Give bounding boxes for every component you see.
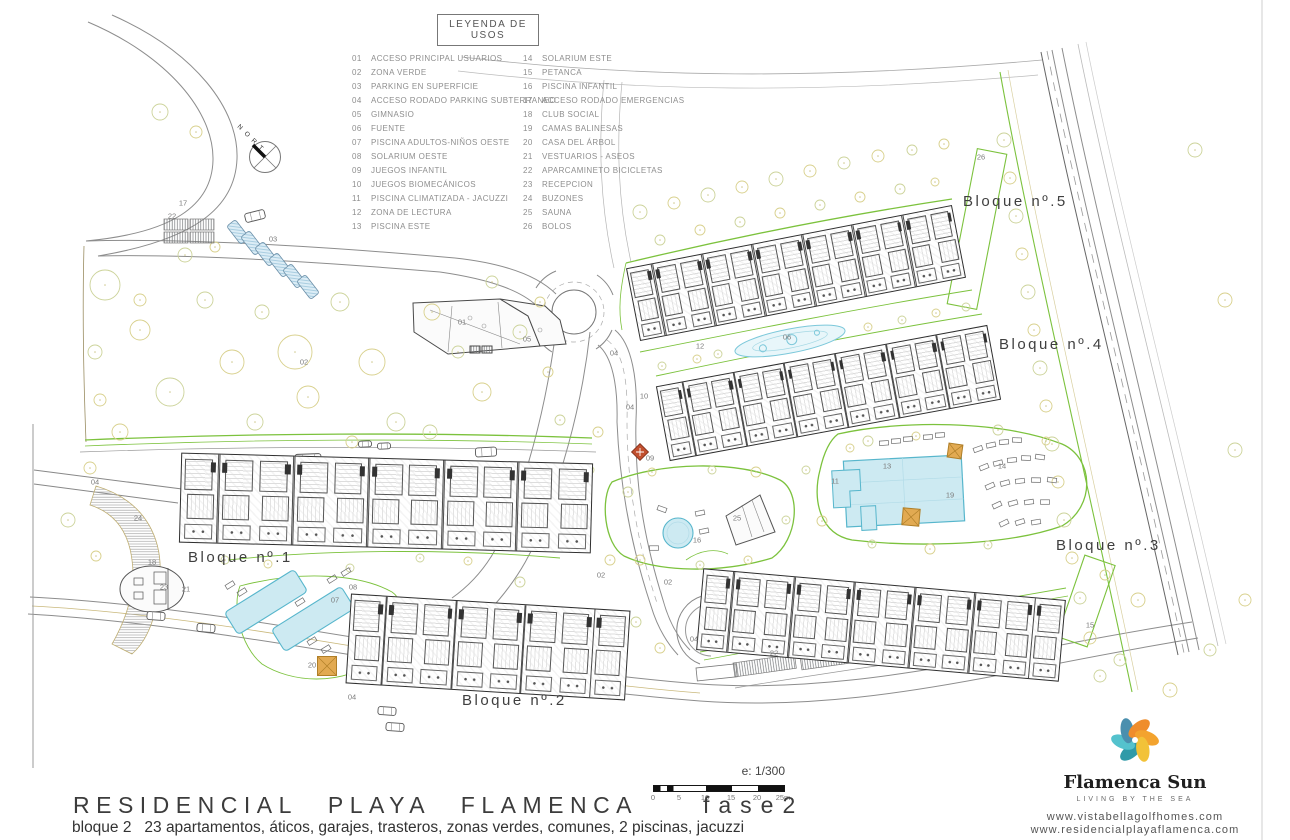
terrace [975, 384, 996, 400]
terrace [881, 649, 905, 665]
terrace [798, 417, 819, 433]
project-subtitle: bloque 2 23 apartamentos, áticos, garaje… [72, 819, 744, 837]
terrace [867, 277, 888, 293]
area-marker-12: 12 [696, 342, 704, 351]
terrace [696, 436, 717, 452]
site-plan-sheet: NORT LEYENDA DE USOS 01ACCESO PRINCIPAL … [0, 0, 1290, 840]
legend-item-number: 09 [352, 164, 371, 178]
legend-item: 24BUZONES [523, 192, 684, 206]
legend-item-label: ZONA DE LECTURA [371, 208, 452, 217]
legend-item: 22APARCAMINETO BICICLETAS [523, 164, 684, 178]
stair-core [517, 613, 522, 624]
terrace [767, 296, 788, 312]
apartment-unit [180, 454, 220, 543]
stair-core [897, 223, 902, 232]
stair-core [697, 261, 702, 270]
stair-core [830, 361, 835, 370]
terrace [408, 530, 437, 546]
scale-tick: 0 [651, 793, 655, 802]
stair-core [706, 260, 711, 269]
legend-item-label: ACCESO PRINCIPAL USUARIOS [371, 54, 502, 63]
legend-item-number: 22 [523, 164, 542, 178]
stair-core [378, 604, 383, 615]
area-marker-09: 09 [646, 454, 654, 463]
legend-item-number: 07 [352, 136, 371, 150]
legend-item: 25SAUNA [523, 206, 684, 220]
area-marker-23: 23 [160, 583, 168, 592]
terrace [483, 532, 512, 548]
scale-tick: 5 [677, 793, 681, 802]
terrace [490, 673, 517, 690]
legend-item-number: 13 [352, 220, 371, 234]
terrace [350, 665, 377, 682]
terrace [420, 669, 447, 686]
stair-core [521, 470, 526, 481]
stair-core [847, 232, 852, 241]
stair-core [931, 342, 936, 351]
terrace [456, 671, 483, 688]
legend-item-number: 24 [523, 192, 542, 206]
legend-item-number: 01 [352, 52, 371, 66]
stair-core [917, 595, 922, 605]
area-marker-04: 04 [348, 693, 356, 702]
legend-item-label: FUENTE [371, 124, 405, 133]
apartment-unit [404, 460, 444, 549]
legend-item-label: BOLOS [542, 222, 572, 231]
area-marker-26: 26 [977, 153, 985, 162]
stair-core [447, 608, 452, 619]
legend-item-number: 14 [523, 52, 542, 66]
stair-core [528, 613, 533, 624]
terrace [594, 680, 621, 697]
stair-core [788, 369, 793, 378]
legend-item-number: 10 [352, 178, 371, 192]
terrace [791, 292, 812, 308]
stair-core [977, 601, 982, 611]
stair-core [1027, 605, 1032, 615]
apartment-unit [479, 461, 519, 550]
legend-item-label: ZONA VERDE [371, 68, 427, 77]
stair-core [297, 465, 302, 476]
terrace [1032, 662, 1056, 678]
legend-item-number: 04 [352, 94, 371, 108]
area-marker-03: 03 [269, 235, 277, 244]
stair-core [360, 466, 365, 477]
apartment-unit [521, 605, 561, 695]
legend-item: 21VESTUARIOS - ASEOS [523, 150, 684, 164]
terrace [852, 646, 876, 662]
terrace [817, 287, 838, 303]
area-marker-11: 11 [831, 477, 839, 486]
sun-pinwheel-icon [1107, 710, 1163, 770]
legend-item: 18CLUB SOCIAL [523, 108, 684, 122]
legend-item-label: CAMAS BALINESAS [542, 124, 623, 133]
stair-core [1036, 606, 1041, 616]
legend-item-number: 18 [523, 108, 542, 122]
legend-item-number: 26 [523, 220, 542, 234]
stair-core [677, 389, 682, 398]
terrace [732, 636, 756, 652]
legend-item-label: PISCINA ADULTOS-NIÑOS OESTE [371, 138, 510, 147]
area-marker-04: 04 [610, 349, 618, 358]
stair-core [940, 341, 945, 350]
stair-core [856, 590, 861, 600]
terrace [942, 654, 966, 670]
apartment-unit [255, 456, 295, 545]
legend-item-label: BUZONES [542, 194, 583, 203]
legend-item: 16PISCINA INFANTIL [523, 80, 684, 94]
legend-item-label: SAUNA [542, 208, 572, 217]
apartment-unit [217, 455, 257, 544]
terrace [259, 526, 288, 542]
terrace [792, 641, 816, 657]
apartment-unit [553, 463, 592, 552]
building-block-3 [696, 568, 1066, 681]
apartment-unit [486, 603, 526, 693]
legend-item-label: APARCAMINETO BICICLETAS [542, 166, 663, 175]
building-block-2 [346, 594, 631, 701]
stair-core [889, 350, 894, 359]
area-marker-13: 13 [883, 462, 891, 471]
project-title: RESIDENCIAL PLAYA FLAMENCA [73, 792, 638, 819]
legend-item-label: CASA DEL ÁRBOL [542, 138, 616, 147]
stair-core [797, 242, 802, 251]
legend-item-number: 02 [352, 66, 371, 80]
legend-item-label: VESTUARIOS - ASEOS [542, 152, 635, 161]
area-marker-14: 14 [998, 462, 1006, 471]
legend-item-label: RECEPCION [542, 180, 593, 189]
stair-core [223, 463, 228, 474]
legend-item-label: PARKING EN SUPERFICIE [371, 82, 478, 91]
terrace [667, 316, 688, 332]
stair-core [906, 221, 911, 230]
terrace [821, 644, 845, 660]
phase-label: fase2 [703, 792, 804, 819]
stair-core [880, 352, 885, 361]
stair-core [856, 231, 861, 240]
terrace [900, 398, 921, 414]
stair-core [726, 579, 731, 589]
legend-item-label: JUEGOS BIOMECÁNICOS [371, 180, 476, 189]
block-label-5: Bloque nº.5 [963, 193, 1068, 210]
area-marker-02: 02 [597, 571, 605, 580]
legend-item: 20CASA DEL ÁRBOL [523, 136, 684, 150]
apartment-unit [347, 595, 387, 685]
apartment-unit [441, 460, 481, 549]
stair-core [806, 240, 811, 249]
terrace [446, 531, 475, 547]
legend-item: 14SOLARIUM ESTE [523, 52, 684, 66]
apartment-unit [451, 601, 491, 691]
terrace [772, 422, 793, 438]
legend-item-number: 25 [523, 206, 542, 220]
stair-core [747, 252, 752, 261]
stair-core [459, 609, 464, 620]
apartment-unit [367, 459, 407, 548]
terrace [701, 633, 725, 649]
legend-item-number: 23 [523, 178, 542, 192]
area-marker-07: 07 [331, 596, 339, 605]
stair-core [796, 585, 801, 595]
company-logo: Flamenca Sun LIVING BY THE SEA www.vista… [1030, 710, 1240, 836]
apartment-unit [416, 599, 456, 689]
apartment-unit [329, 458, 369, 547]
area-marker-04: 04 [690, 635, 698, 644]
area-marker-22: 22 [770, 649, 778, 658]
legend-title-box: LEYENDA DE USOS [437, 14, 539, 46]
terrace [913, 652, 937, 668]
terrace [386, 667, 413, 684]
terrace [1002, 659, 1026, 675]
legend-item-label: ACCESO RODADO EMERGENCIAS [542, 96, 684, 105]
area-marker-25: 25 [733, 514, 741, 523]
terrace [691, 311, 712, 327]
legend-item-number: 21 [523, 150, 542, 164]
stair-core [786, 584, 791, 594]
stair-core [447, 468, 452, 479]
area-marker-05: 05 [523, 335, 531, 344]
area-marker-16: 16 [693, 536, 701, 545]
block-label-4: Bloque nº.4 [999, 336, 1104, 353]
stair-core [947, 213, 952, 222]
scale-bar-graphic [653, 785, 785, 792]
stair-core [779, 371, 784, 380]
terrace [891, 272, 912, 288]
stair-core [597, 618, 602, 629]
stair-core [435, 468, 440, 479]
area-marker-20: 20 [308, 661, 316, 670]
terrace [184, 524, 213, 540]
terrace [557, 534, 586, 550]
area-marker-01: 01 [458, 318, 466, 327]
apartment-unit [555, 607, 595, 697]
terrace [873, 403, 894, 419]
legend-item: 19CAMAS BALINESAS [523, 122, 684, 136]
area-marker-22: 22 [168, 212, 176, 221]
legend-item: 15PETANCA [523, 66, 684, 80]
legend-item-label: PISCINA INFANTIL [542, 82, 617, 91]
stair-core [737, 378, 742, 387]
legend-item-label: JUEGOS INFANTIL [371, 166, 447, 175]
stair-core [210, 462, 215, 473]
terrace [747, 427, 768, 443]
legend-item-label: PISCINA ESTE [371, 222, 430, 231]
legend-item-number: 03 [352, 80, 371, 94]
terrace [222, 525, 251, 541]
terrace [924, 394, 945, 410]
legend-item-number: 20 [523, 136, 542, 150]
apartment-unit [590, 609, 629, 699]
terrace [917, 267, 938, 283]
legend-item-label: SOLARIUM OESTE [371, 152, 448, 161]
area-marker-04: 04 [626, 403, 634, 412]
terrace [741, 302, 762, 318]
website-link-1: www.vistabellagolfhomes.com [1030, 811, 1240, 823]
stair-core [586, 617, 591, 628]
area-marker-15: 15 [1086, 621, 1094, 630]
apartment-unit [292, 457, 332, 546]
apartment-unit [381, 597, 421, 687]
terrace [670, 441, 691, 457]
legend-item-label: CLUB SOCIAL [542, 110, 599, 119]
stair-core [509, 470, 514, 481]
terrace [641, 321, 662, 337]
stair-core [686, 388, 691, 397]
legend-item-number: 05 [352, 108, 371, 122]
terrace [717, 306, 738, 322]
terrace [950, 389, 971, 405]
terrace [721, 431, 742, 447]
terrace [822, 413, 843, 429]
legend-item-label: PISCINA CLIMATIZADA - JACUZZI [371, 194, 508, 203]
stair-core [372, 467, 377, 478]
stair-core [728, 380, 733, 389]
legend-title: LEYENDA DE USOS [449, 19, 527, 41]
terrace [973, 657, 997, 673]
block-label-1: Bloque nº.1 [188, 549, 293, 566]
stair-core [846, 589, 851, 599]
stair-core [647, 271, 652, 280]
website-link-2: www.residencialplayaflamenca.com [1030, 824, 1240, 836]
stair-core [967, 600, 972, 610]
block-label-2: Bloque nº.2 [462, 692, 567, 709]
legend-item: 17ACCESO RODADO EMERGENCIAS [523, 94, 684, 108]
area-marker-19: 19 [946, 491, 954, 500]
area-marker-18: 18 [148, 558, 156, 567]
legend-item: 26BOLOS [523, 220, 684, 234]
terrace [525, 676, 552, 693]
stair-core [736, 579, 741, 589]
area-marker-06: 06 [783, 333, 791, 342]
stair-core [838, 360, 843, 369]
legend-item-number: 17 [523, 94, 542, 108]
legend-item-label: PETANCA [542, 68, 582, 77]
area-marker-02: 02 [300, 358, 308, 367]
logo-tagline: LIVING BY THE SEA [1030, 796, 1240, 803]
legend-item-number: 11 [352, 192, 371, 206]
area-marker-04: 04 [91, 478, 99, 487]
legend-item-number: 08 [352, 150, 371, 164]
terrace [297, 527, 326, 543]
terrace [333, 528, 362, 544]
legend-item-number: 15 [523, 66, 542, 80]
stair-core [756, 250, 761, 259]
scale-label: e: 1/300 [742, 764, 785, 778]
legend-item-label: GIMNASIO [371, 110, 414, 119]
building-block-4 [655, 325, 1000, 461]
block-label-3: Bloque nº.3 [1056, 537, 1161, 554]
apartment-unit [516, 462, 556, 551]
terrace [841, 282, 862, 298]
building-block-1 [179, 453, 593, 554]
terrace [849, 408, 870, 424]
stair-core [584, 472, 589, 483]
legend-item-number: 12 [352, 206, 371, 220]
area-marker-08: 08 [349, 583, 357, 592]
legend-item-label: SOLARIUM ESTE [542, 54, 612, 63]
area-marker-24: 24 [134, 514, 142, 523]
legend-item-number: 19 [523, 122, 542, 136]
apartment-unit [1029, 598, 1065, 680]
stair-core [389, 605, 394, 616]
terrace [941, 263, 962, 279]
area-marker-02: 02 [664, 578, 672, 587]
terrace [521, 533, 550, 549]
stair-core [656, 269, 661, 278]
area-marker-21: 21 [182, 585, 190, 594]
logo-name: Flamenca Sun [1030, 772, 1240, 793]
stair-core [907, 594, 912, 604]
legend-item: 23RECEPCION [523, 178, 684, 192]
stair-core [285, 464, 290, 475]
area-marker-17: 17 [179, 199, 187, 208]
stair-core [982, 333, 987, 342]
terrace [372, 529, 401, 545]
legend-column-right: 14SOLARIUM ESTE15PETANCA16PISCINA INFANT… [523, 52, 684, 234]
area-marker-10: 10 [640, 392, 648, 401]
legend-item-number: 06 [352, 122, 371, 136]
legend-item-number: 16 [523, 80, 542, 94]
